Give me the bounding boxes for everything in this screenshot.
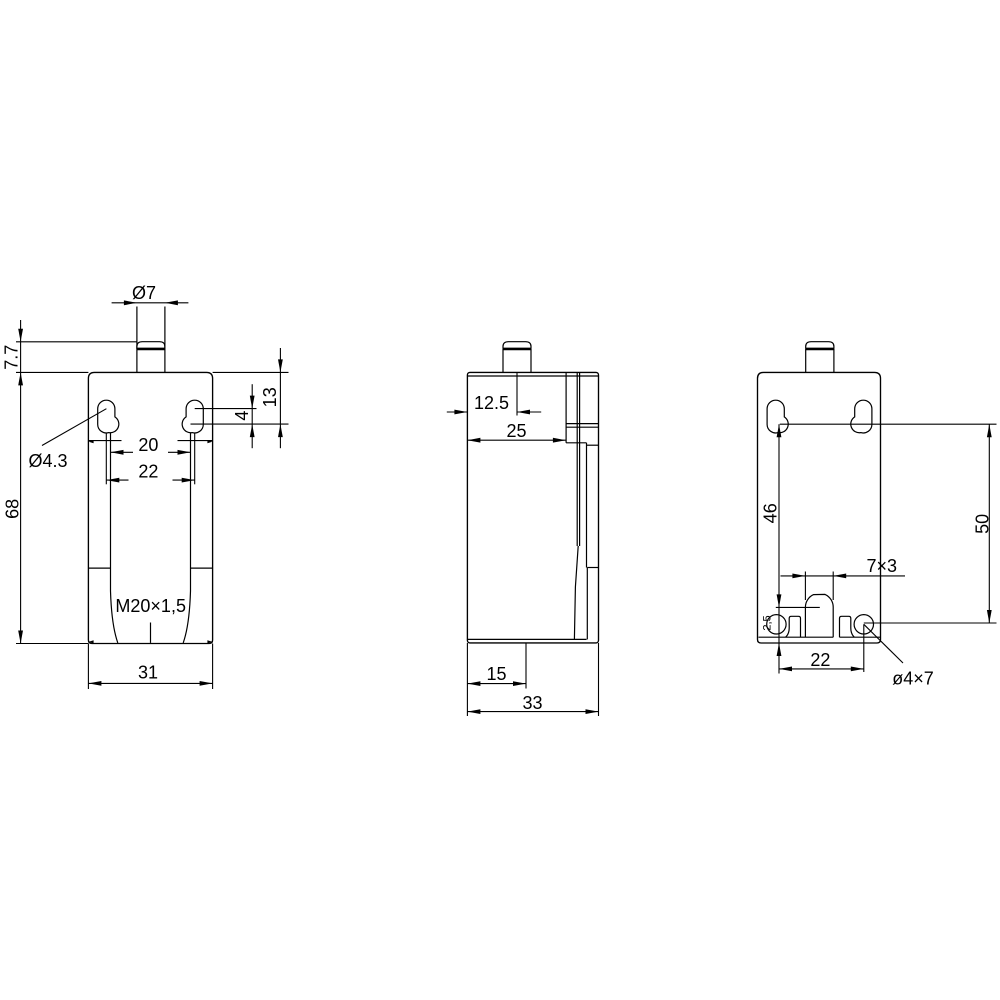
svg-text:13: 13 (260, 387, 280, 407)
svg-text:22: 22 (810, 650, 830, 670)
svg-text:4: 4 (232, 411, 252, 421)
svg-text:46: 46 (760, 503, 780, 523)
svg-text:M20×1,5: M20×1,5 (115, 596, 186, 616)
svg-text:7.7: 7.7 (1, 345, 21, 370)
svg-text:33: 33 (522, 693, 542, 713)
svg-text:20: 20 (138, 435, 158, 455)
svg-text:22: 22 (138, 461, 158, 481)
svg-text:31: 31 (138, 662, 158, 682)
svg-text:ø4×7: ø4×7 (892, 668, 934, 688)
svg-text:7×3: 7×3 (867, 556, 898, 576)
svg-text:25: 25 (506, 421, 526, 441)
svg-text:68: 68 (2, 499, 22, 519)
svg-text:12.5: 12.5 (474, 393, 509, 413)
svg-text:Ø7: Ø7 (132, 283, 156, 303)
svg-text:15: 15 (486, 664, 506, 684)
svg-text:50: 50 (972, 514, 992, 534)
svg-text:Ø4.3: Ø4.3 (28, 451, 67, 471)
